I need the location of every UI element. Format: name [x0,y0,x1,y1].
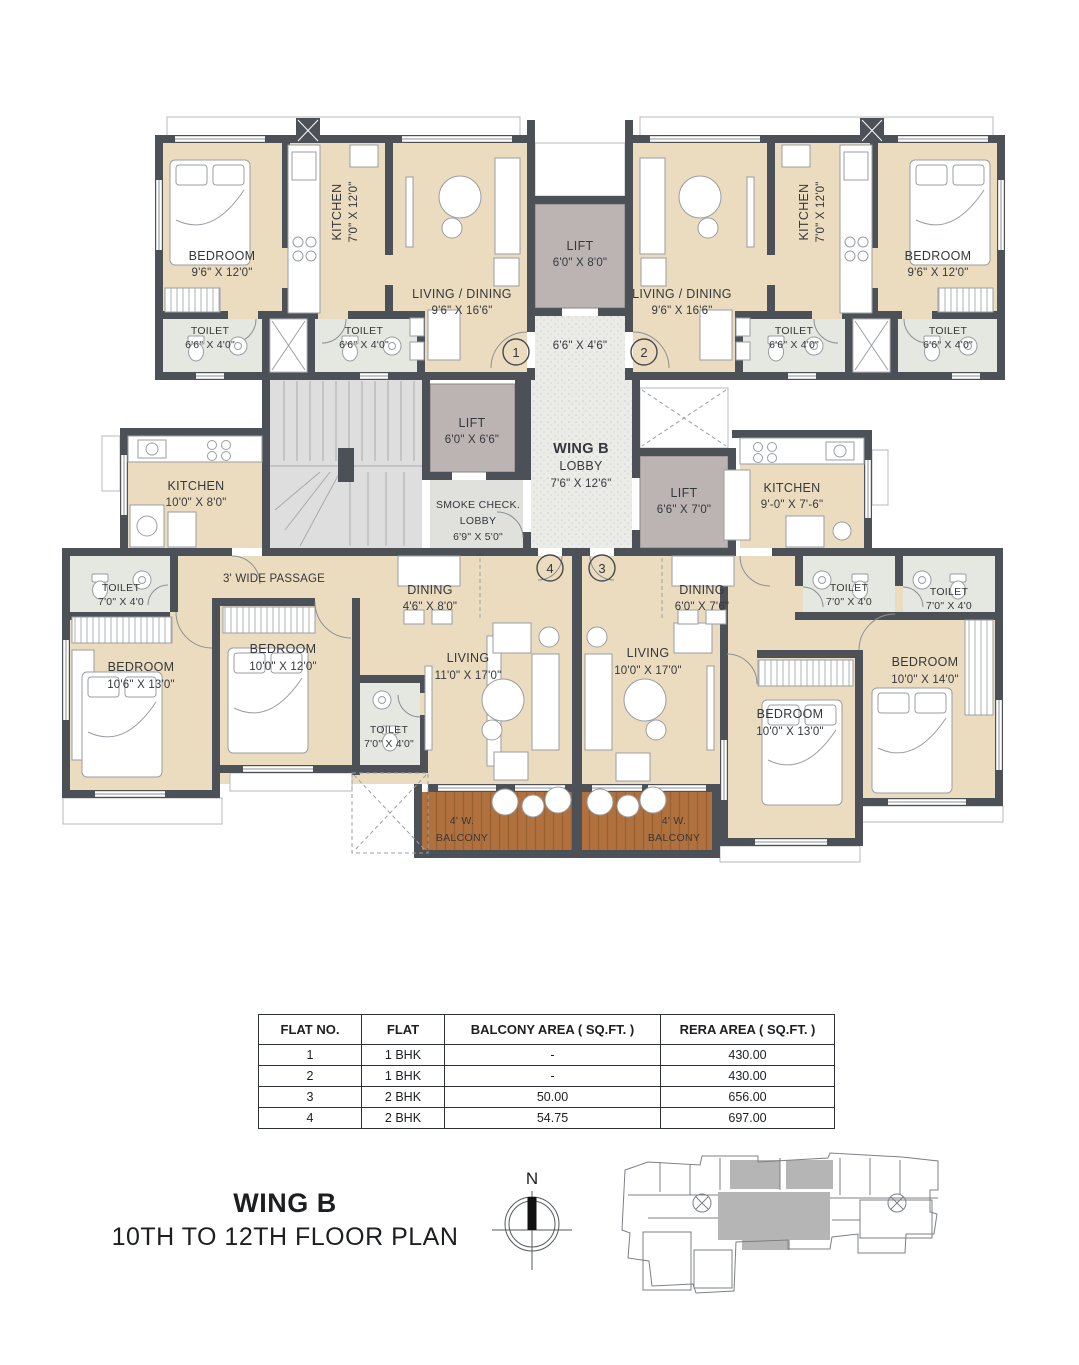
room-label: TOILET [370,724,409,736]
room-dims: 10'0" X 17'0" [614,665,682,677]
room-label: BEDROOM [757,707,824,721]
cell-balcony-area: - [445,1045,661,1066]
room-dims: 9'6" X 16'6" [432,305,493,317]
cell-flat-no: 3 [259,1087,362,1108]
cell-rera-area: 430.00 [661,1066,835,1087]
cell-balcony-area: 50.00 [445,1087,661,1108]
room-dims: 9'-0" X 7'-6" [761,499,823,511]
col-flat: FLAT [362,1015,445,1045]
room-label: TOILET [830,582,869,594]
room-label: LIVING [627,646,670,660]
cell-flat-no: 4 [259,1108,362,1129]
room-label: SMOKE CHECK. [436,499,520,511]
room-label: TOILET [930,586,969,598]
wing-title: WING B [90,1188,480,1219]
room-dims: 7'0" X 4'0 [926,600,972,612]
col-balcony-area: BALCONY AREA ( SQ.FT. ) [445,1015,661,1045]
room-dims: 7'0" X 4'0 [98,596,144,608]
room-label: TOILET [102,582,141,594]
room-dims: 9'6" X 12'0" [192,267,253,279]
cell-flat-no: 1 [259,1045,362,1066]
cell-flat: 2 BHK [362,1087,445,1108]
room-dims: 4'6" X 8'0" [403,601,457,613]
lobby-label: LOBBY [559,459,603,473]
room-dims: 6'9" X 5'0" [453,531,503,543]
room-label: LOBBY [460,515,497,527]
room-label: TOILET [345,325,384,337]
room-dims: 6'0" X 8'0" [553,257,607,269]
room-label: 4' W. [450,815,475,827]
room-label: LIVING [447,651,490,665]
flat-marker-3: 3 [598,561,605,576]
cell-rera-area: 656.00 [661,1087,835,1108]
room-dims: 10'0" X 13'0" [756,726,824,738]
bed-icon [872,688,952,793]
room-dims: 7'0" X 12'0" [348,182,360,243]
room-dims: 10'0" X 14'0" [891,674,959,686]
room-label: LIVING / DINING [412,287,512,301]
room-label: 4' W. [662,815,687,827]
room-dims: 10'0" X 8'0" [166,497,227,509]
table-header-row: FLAT NO. FLAT BALCONY AREA ( SQ.FT. ) RE… [259,1015,835,1045]
compass-needle-icon [528,1197,537,1230]
room-label: BALCONY [436,832,488,844]
cell-flat: 2 BHK [362,1108,445,1129]
col-flat-no: FLAT NO. [259,1015,362,1045]
table-row: 1 1 BHK - 430.00 [259,1045,835,1066]
key-plan [622,1153,938,1293]
room-dims: 11'0" X 17'0" [435,670,502,682]
cell-flat-no: 2 [259,1066,362,1087]
room-label: LIVING / DINING [632,287,732,301]
floor-title: 10TH TO 12TH FLOOR PLAN [90,1223,480,1252]
room-label: TOILET [929,325,968,337]
room-label: TOILET [775,325,814,337]
col-rera-area: RERA AREA ( SQ.FT. ) [661,1015,835,1045]
passage-label: 3' WIDE PASSAGE [223,573,325,585]
room-label: DINING [407,583,453,597]
room-dims: 6'6" X 4'0" [769,339,819,351]
flat-area-table: FLAT NO. FLAT BALCONY AREA ( SQ.FT. ) RE… [258,1014,835,1129]
room-label: BALCONY [648,832,700,844]
cell-flat: 1 BHK [362,1045,445,1066]
room-dims: 9'6" X 12'0" [908,267,969,279]
room-dims: 6'6" X 4'0" [185,339,235,351]
room-dims: 9'6" X 16'6" [652,305,713,317]
floor-plan-drawing: BEDROOM 9'6" X 12'0" KITCHEN 7'0" X 12'0… [0,0,1079,1365]
lobby-title: WING B [553,441,609,457]
room-dims: 6'0" X 6'6" [445,434,499,446]
cell-rera-area: 430.00 [661,1045,835,1066]
room-label: DINING [679,583,725,597]
room-label: LIFT [671,486,698,500]
room-label: KITCHEN [797,184,811,241]
room-dims: 6'0" X 7'6" [675,601,729,613]
room-dims: 6'6" X 7'0" [657,504,711,516]
table-row: 2 1 BHK - 430.00 [259,1066,835,1087]
room-label: LIFT [459,416,486,430]
north-compass: N [492,1169,572,1270]
north-label: N [526,1169,538,1188]
room-label: BEDROOM [108,660,175,674]
flat-marker-1: 1 [512,345,519,360]
room-label: KITCHEN [330,184,344,241]
cell-balcony-area: - [445,1066,661,1087]
room-label: BEDROOM [892,655,959,669]
table-row: 4 2 BHK 54.75 697.00 [259,1108,835,1129]
table-row: 3 2 BHK 50.00 656.00 [259,1087,835,1108]
room-dims: 10'0" X 12'0" [249,661,317,673]
room-label: KITCHEN [764,481,821,495]
flat-marker-2: 2 [640,345,647,360]
room-label: TOILET [191,325,230,337]
cell-flat: 1 BHK [362,1066,445,1087]
room-dims: 6'6" X 4'0" [339,339,389,351]
room-label: LIFT [567,239,594,253]
room-label: BEDROOM [250,642,317,656]
room-label: KITCHEN [168,479,225,493]
room-dims: 6'6" X 4'6" [553,340,607,352]
room-dims: 7'0" X 4'0" [364,738,414,750]
room-dims: 7'0" X 4'0 [826,596,872,608]
plan-title: WING B 10TH TO 12TH FLOOR PLAN [90,1188,480,1252]
flat-marker-4: 4 [546,561,553,576]
floor-plan-page: BEDROOM 9'6" X 12'0" KITCHEN 7'0" X 12'0… [0,0,1079,1365]
room-dims: 7'0" X 12'0" [815,182,827,243]
room-dims: 6'6" X 4'0" [923,339,973,351]
room-label: BEDROOM [189,249,256,263]
room-label: BEDROOM [905,249,972,263]
lobby-dims: 7'6" X 12'6" [551,478,612,490]
room-dims: 10'6" X 13'0" [107,679,175,691]
cell-balcony-area: 54.75 [445,1108,661,1129]
cell-rera-area: 697.00 [661,1108,835,1129]
